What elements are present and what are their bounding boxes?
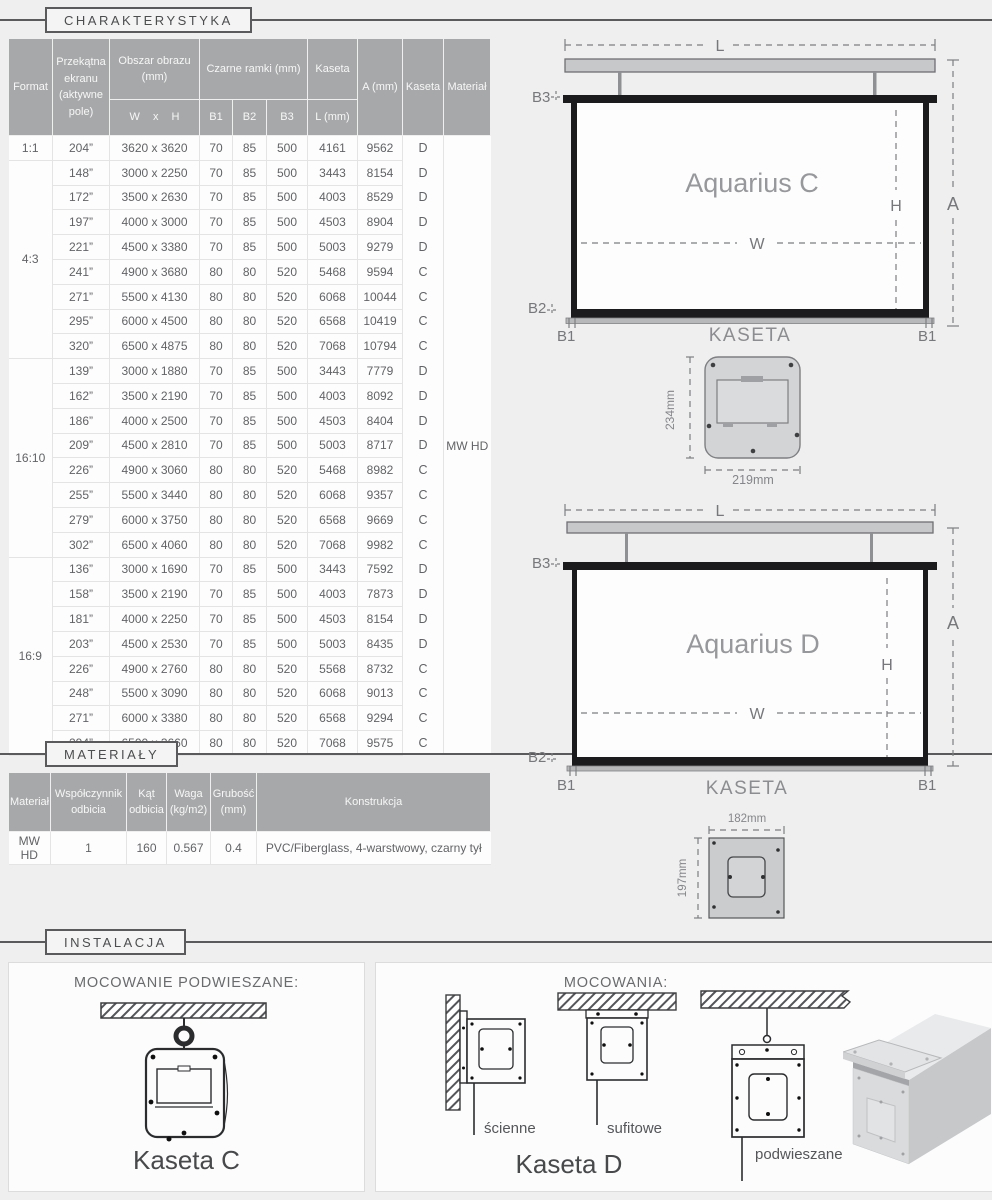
hanging-ring — [176, 1028, 192, 1044]
cell-fmt: 16:10 — [9, 359, 53, 557]
cell-b: 70 — [200, 185, 233, 210]
cell-kas: C — [403, 532, 444, 557]
spec-row: 1:1204”3620 x 3620708550041619562DMW HD — [9, 136, 491, 161]
col-thickness: Grubość (mm) — [211, 773, 257, 832]
spec-row: 181”4000 x 2250708550045038154D — [9, 607, 491, 632]
cell-b: 80 — [200, 483, 233, 508]
col-image-area: Obszar obrazu (mm) — [110, 39, 200, 100]
cell-diag: 203” — [53, 631, 110, 656]
cell-diag: 172” — [53, 185, 110, 210]
spec-sheet-page: CHARAKTERYSTYKA Format Przekątna ekranu … — [0, 0, 992, 1200]
cell-kas: D — [403, 408, 444, 433]
cell-b: 80 — [233, 681, 267, 706]
cell-diag: 139” — [53, 359, 110, 384]
cell-b: 520 — [267, 259, 308, 284]
cell-dims: 3000 x 1690 — [110, 557, 200, 582]
cell-b: 80 — [200, 507, 233, 532]
cell-b: 80 — [233, 334, 267, 359]
cell-a: 7779 — [358, 359, 403, 384]
cell-l: 3443 — [308, 557, 358, 582]
hanger-bracket — [625, 533, 628, 562]
cell-kas: C — [403, 334, 444, 359]
cell-a: 8435 — [358, 631, 403, 656]
col-l-mm: L (mm) — [308, 100, 358, 136]
col-b1: B1 — [200, 100, 233, 136]
aquarius-d-diagram: L Aquarius D W H A B3 B2 B1 B1 KASETA — [515, 498, 990, 810]
cell-diag: 271” — [53, 706, 110, 731]
cell-l: 5003 — [308, 433, 358, 458]
dim-label-w: W — [749, 706, 765, 723]
cell-b: 85 — [233, 185, 267, 210]
cell-kas: D — [403, 185, 444, 210]
dim-label-b3: B3 — [532, 555, 550, 572]
spec-row: 16:9136”3000 x 1690708550034437592D — [9, 557, 491, 582]
cell-a: 8154 — [358, 607, 403, 632]
cell-b: 80 — [200, 309, 233, 334]
cell-l: 5468 — [308, 458, 358, 483]
materials-row: MW HD11600.5670.4PVC/Fiberglass, 4-warst… — [9, 832, 491, 865]
cell-diag: 162” — [53, 383, 110, 408]
installation-panel-kaseta-c: MOCOWANIE PODWIESZANE: Kaseta C — [8, 962, 365, 1192]
spec-row: 221”4500 x 3380708550050039279D — [9, 235, 491, 260]
spec-row: 197”4000 x 3000708550045038904D — [9, 210, 491, 235]
cell-diag: 226” — [53, 458, 110, 483]
cell-dims: 6500 x 4060 — [110, 532, 200, 557]
cell-dims: 3500 x 2190 — [110, 582, 200, 607]
cell-diag: 204” — [53, 136, 110, 161]
cell-l: 6568 — [308, 309, 358, 334]
hanger-bracket — [618, 72, 622, 95]
col-b2: B2 — [233, 100, 267, 136]
cell-kas: D — [403, 160, 444, 185]
cell-l: 4503 — [308, 607, 358, 632]
cell-fmt: 4:3 — [9, 160, 53, 358]
cell-diag: 248” — [53, 681, 110, 706]
cell-b: 520 — [267, 706, 308, 731]
cell-b: 500 — [267, 582, 308, 607]
cell-b: 85 — [233, 383, 267, 408]
cell-dims: 3000 x 2250 — [110, 160, 200, 185]
spec-row: 248”5500 x 3090808052060689013C — [9, 681, 491, 706]
cell-b: 500 — [267, 235, 308, 260]
col-material: Materiał — [444, 39, 491, 136]
spec-row: 16:10139”3000 x 1880708550034437779D — [9, 359, 491, 384]
kaseta-d-cross-section: 182mm 197mm — [660, 812, 860, 934]
suspended-mount-drawing — [89, 999, 279, 1149]
cell-b: 500 — [267, 136, 308, 161]
cell-l: 4003 — [308, 185, 358, 210]
cell-b: 85 — [233, 557, 267, 582]
cell-b: 70 — [200, 359, 233, 384]
cell-fmt: 1:1 — [9, 136, 53, 161]
panel-caption: Kaseta C — [9, 1145, 364, 1176]
cell-b: 85 — [233, 210, 267, 235]
cell-b: 500 — [267, 408, 308, 433]
spec-row: 279”6000 x 3750808052065689669C — [9, 507, 491, 532]
top-bracket — [732, 1045, 804, 1059]
cell-kas: D — [403, 631, 444, 656]
cell-b: 520 — [267, 334, 308, 359]
cell-b: 70 — [200, 631, 233, 656]
cell-dims: 3000 x 1880 — [110, 359, 200, 384]
cell-a: 9562 — [358, 136, 403, 161]
cell-diag: 158” — [53, 582, 110, 607]
col-a: A (mm) — [358, 39, 403, 136]
cell-b: 85 — [233, 408, 267, 433]
cell-a: 9013 — [358, 681, 403, 706]
cell-b: 70 — [200, 557, 233, 582]
cell-l: 6068 — [308, 483, 358, 508]
dim-label-b1: B1 — [557, 328, 575, 345]
dim-label-l: L — [716, 503, 725, 520]
cell-a: 9669 — [358, 507, 403, 532]
dim-label-h: H — [881, 657, 893, 674]
cassette-3d-render — [843, 1002, 991, 1194]
cell-dims: 4500 x 3380 — [110, 235, 200, 260]
cell-a: 9575 — [358, 731, 403, 756]
cell-dims: 6000 x 4500 — [110, 309, 200, 334]
cell-kas: D — [403, 582, 444, 607]
cell-b: 80 — [200, 706, 233, 731]
cell-b: 520 — [267, 483, 308, 508]
cell-a: 9594 — [358, 259, 403, 284]
cell-b: 80 — [233, 284, 267, 309]
cell-b: 70 — [200, 607, 233, 632]
cell-value: 1 — [51, 832, 127, 865]
cell-b: 80 — [200, 458, 233, 483]
spec-row: 302”6500 x 4060808052070689982C — [9, 532, 491, 557]
dim-label-b1: B1 — [918, 328, 936, 345]
cell-b: 80 — [200, 259, 233, 284]
cell-dims: 6000 x 3750 — [110, 507, 200, 532]
cell-diag: 302” — [53, 532, 110, 557]
cell-mat: MW HD — [444, 136, 491, 756]
mount-label-wall: ścienne — [484, 1120, 536, 1137]
cell-a: 9294 — [358, 706, 403, 731]
cell-b: 85 — [233, 582, 267, 607]
col-kaseta-l: Kaseta — [308, 39, 358, 100]
screen-surface — [577, 570, 923, 757]
cell-b: 70 — [200, 210, 233, 235]
cell-dims: 3500 x 2630 — [110, 185, 200, 210]
cell-diag: 221” — [53, 235, 110, 260]
cell-l: 7068 — [308, 731, 358, 756]
aquarius-c-diagram: L Aquarius C W H A B3 B2 B1 B1 — [515, 30, 990, 352]
cell-kas: C — [403, 259, 444, 284]
cell-b: 80 — [233, 309, 267, 334]
cell-b: 520 — [267, 656, 308, 681]
dim-label-b1: B1 — [918, 777, 936, 794]
cell-a: 8154 — [358, 160, 403, 185]
cell-b: 80 — [233, 507, 267, 532]
spec-row: 209”4500 x 2810708550050038717D — [9, 433, 491, 458]
spec-row: 271”6000 x 3380808052065689294C — [9, 706, 491, 731]
cell-l: 4503 — [308, 210, 358, 235]
cell-b: 520 — [267, 458, 308, 483]
bottom-slat — [567, 766, 933, 771]
cell-diag: 255” — [53, 483, 110, 508]
col-angle: Kąt odbicia — [127, 773, 167, 832]
dim-label-b2: B2 — [528, 749, 546, 766]
cell-b: 80 — [233, 706, 267, 731]
col-reflection: Współczynnik odbicia — [51, 773, 127, 832]
cell-diag: 148” — [53, 160, 110, 185]
materials-table-body: MW HD11600.5670.4PVC/Fiberglass, 4-warst… — [9, 832, 491, 865]
cell-diag: 186” — [53, 408, 110, 433]
dim-label-b2: B2 — [528, 300, 546, 317]
cell-b: 500 — [267, 607, 308, 632]
materials-table: Materiał Współczynnik odbicia Kąt odbici… — [8, 772, 491, 865]
dim-label-b3: B3 — [532, 89, 550, 106]
cell-b: 80 — [200, 731, 233, 756]
cell-l: 4003 — [308, 582, 358, 607]
cell-a: 8404 — [358, 408, 403, 433]
mount-label-suspended: podwieszane — [755, 1146, 843, 1163]
cell-kas: C — [403, 656, 444, 681]
cell-kas: D — [403, 433, 444, 458]
cell-kas: C — [403, 731, 444, 756]
cell-l: 4503 — [308, 408, 358, 433]
cell-a: 10419 — [358, 309, 403, 334]
cell-a: 9982 — [358, 532, 403, 557]
dim-label-h: H — [890, 198, 902, 215]
cell-diag: 226” — [53, 656, 110, 681]
cell-diag: 136” — [53, 557, 110, 582]
cell-l: 7068 — [308, 532, 358, 557]
col-black-frames: Czarne ramki (mm) — [200, 39, 308, 100]
cell-value: 160 — [127, 832, 167, 865]
cell-l: 5003 — [308, 235, 358, 260]
cell-a: 9279 — [358, 235, 403, 260]
cell-value: 0.4 — [211, 832, 257, 865]
cell-b: 70 — [200, 433, 233, 458]
diagram-title: Aquarius D — [686, 629, 820, 659]
cassette-slot — [717, 380, 788, 423]
spec-row: 226”4900 x 2760808052055688732C — [9, 656, 491, 681]
col-kaseta-type: Kaseta — [403, 39, 444, 136]
ceiling-bracket — [586, 1010, 648, 1018]
cell-kas: D — [403, 359, 444, 384]
cell-dims: 6000 x 3380 — [110, 706, 200, 731]
cell-diag: 320” — [53, 334, 110, 359]
mount-label-ceiling: sufitowe — [607, 1120, 662, 1137]
cell-dims: 4000 x 3000 — [110, 210, 200, 235]
cell-diag: 271” — [53, 284, 110, 309]
bottom-slat — [566, 318, 934, 324]
cell-kas: D — [403, 557, 444, 582]
cell-l: 4003 — [308, 383, 358, 408]
cell-dims: 3620 x 3620 — [110, 136, 200, 161]
cell-diag: 197” — [53, 210, 110, 235]
cross-width-label: 182mm — [728, 813, 766, 825]
cell-dims: 4500 x 2530 — [110, 631, 200, 656]
cell-value: 0.567 — [167, 832, 211, 865]
cell-b: 80 — [200, 334, 233, 359]
cell-b: 70 — [200, 383, 233, 408]
col-material: Materiał — [9, 773, 51, 832]
cell-b: 520 — [267, 309, 308, 334]
cell-b: 85 — [233, 136, 267, 161]
cross-height-label: 197mm — [677, 859, 689, 897]
cell-a: 8732 — [358, 656, 403, 681]
col-weight: Waga (kg/m2) — [167, 773, 211, 832]
spec-row: 203”4500 x 2530708550050038435D — [9, 631, 491, 656]
hanger-bracket — [873, 72, 877, 95]
cell-kas: D — [403, 210, 444, 235]
col-construction: Konstrukcja — [257, 773, 491, 832]
cassette-bar — [567, 522, 933, 533]
cell-b: 80 — [233, 731, 267, 756]
cell-a: 7873 — [358, 582, 403, 607]
cell-a: 9357 — [358, 483, 403, 508]
cell-b: 500 — [267, 433, 308, 458]
cell-b: 70 — [200, 136, 233, 161]
section-title-charakterystyka: CHARAKTERYSTYKA — [45, 7, 252, 33]
cell-diag: 181” — [53, 607, 110, 632]
cell-b: 85 — [233, 359, 267, 384]
spec-row: 162”3500 x 2190708550040038092D — [9, 383, 491, 408]
cell-b: 500 — [267, 359, 308, 384]
screen-top-bar — [563, 95, 937, 103]
cell-b: 70 — [200, 408, 233, 433]
col-format: Format — [9, 39, 53, 136]
spec-table-header: Format Przekątna ekranu (aktywne pole) O… — [9, 39, 491, 136]
cell-dims: 4500 x 2810 — [110, 433, 200, 458]
cell-l: 6068 — [308, 681, 358, 706]
cell-b: 500 — [267, 210, 308, 235]
cell-b: 85 — [233, 433, 267, 458]
cassette — [732, 1059, 804, 1137]
cell-l: 6568 — [308, 706, 358, 731]
cross-width-label: 219mm — [732, 473, 774, 487]
col-diagonal: Przekątna ekranu (aktywne pole) — [53, 39, 110, 136]
spec-row: 320”6500 x 48758080520706810794C — [9, 334, 491, 359]
cell-b: 520 — [267, 284, 308, 309]
cell-dims: 5500 x 3090 — [110, 681, 200, 706]
cell-kas: C — [403, 706, 444, 731]
cell-diag: 209” — [53, 433, 110, 458]
cell-b: 70 — [200, 160, 233, 185]
section-title-materialy: MATERIAŁY — [45, 741, 178, 767]
cell-diag: 279” — [53, 507, 110, 532]
cell-b: 80 — [233, 259, 267, 284]
cell-dims: 3500 x 2190 — [110, 383, 200, 408]
cell-dims: 4000 x 2500 — [110, 408, 200, 433]
cell-diag: 295” — [53, 309, 110, 334]
wall — [446, 995, 460, 1110]
cassette-bar — [565, 59, 935, 72]
cell-b: 70 — [200, 582, 233, 607]
cell-b: 500 — [267, 557, 308, 582]
cell-kas: C — [403, 309, 444, 334]
cell-b: 520 — [267, 731, 308, 756]
cell-b: 500 — [267, 631, 308, 656]
dim-label-a: A — [947, 194, 959, 214]
cell-dims: 4000 x 2250 — [110, 607, 200, 632]
spec-table-body: 1:1204”3620 x 3620708550041619562DMW HD4… — [9, 136, 491, 756]
cell-b: 520 — [267, 507, 308, 532]
cross-height-label: 234mm — [663, 390, 677, 430]
dim-label-w: W — [749, 236, 765, 253]
cell-b: 500 — [267, 383, 308, 408]
cassette-slot — [728, 857, 765, 897]
panel-caption: Kaseta D — [469, 1149, 669, 1180]
spec-table: Format Przekątna ekranu (aktywne pole) O… — [8, 38, 491, 756]
cell-l: 3443 — [308, 160, 358, 185]
dim-label-b1: B1 — [557, 777, 575, 794]
diagram-title: Aquarius C — [685, 168, 819, 198]
ceiling — [101, 1003, 266, 1018]
cell-dims: 4900 x 2760 — [110, 656, 200, 681]
cell-b: 85 — [233, 160, 267, 185]
cell-b: 80 — [233, 656, 267, 681]
spec-row: 271”5500 x 41308080520606810044C — [9, 284, 491, 309]
cell-b: 80 — [200, 681, 233, 706]
screen-surface — [577, 103, 923, 309]
cell-b: 80 — [233, 483, 267, 508]
spec-row: 186”4000 x 2500708550045038404D — [9, 408, 491, 433]
cell-l: 6068 — [308, 284, 358, 309]
cell-b: 80 — [200, 656, 233, 681]
cell-l: 5003 — [308, 631, 358, 656]
cell-kas: C — [403, 681, 444, 706]
cell-dims: 4900 x 3680 — [110, 259, 200, 284]
cell-kas: D — [403, 383, 444, 408]
spec-row: 295”6000 x 45008080520656810419C — [9, 309, 491, 334]
cell-value: MW HD — [9, 832, 51, 865]
cell-a: 8982 — [358, 458, 403, 483]
hook — [764, 1036, 771, 1043]
screen-top-bar — [563, 562, 937, 570]
cell-a: 10044 — [358, 284, 403, 309]
cell-b: 85 — [233, 631, 267, 656]
kaseta-c-cross-section: 234mm 219mm — [645, 348, 875, 488]
cell-dims: 5500 x 3440 — [110, 483, 200, 508]
cell-a: 8529 — [358, 185, 403, 210]
hanger-bracket — [870, 533, 873, 562]
spec-row: 172”3500 x 2630708550040038529D — [9, 185, 491, 210]
cell-kas: C — [403, 507, 444, 532]
cell-kas: D — [403, 235, 444, 260]
dim-label-l: L — [716, 38, 725, 55]
cell-kas: C — [403, 284, 444, 309]
cell-dims: 4900 x 3060 — [110, 458, 200, 483]
dim-label-a: A — [947, 613, 959, 633]
cell-b: 80 — [233, 532, 267, 557]
wall-bracket — [460, 1011, 467, 1083]
cell-b: 80 — [200, 532, 233, 557]
cell-dims: 6500 x 4875 — [110, 334, 200, 359]
cell-kas: D — [403, 607, 444, 632]
cell-l: 5568 — [308, 656, 358, 681]
cell-a: 7592 — [358, 557, 403, 582]
ceiling — [558, 993, 676, 1010]
cell-kas: C — [403, 458, 444, 483]
col-b3: B3 — [267, 100, 308, 136]
cell-a: 8717 — [358, 433, 403, 458]
kaseta-caption: KASETA — [709, 325, 792, 346]
cell-l: 5468 — [308, 259, 358, 284]
cell-kas: D — [403, 136, 444, 161]
cell-value: PVC/Fiberglass, 4-warstwowy, czarny tył — [257, 832, 491, 865]
cell-b: 70 — [200, 235, 233, 260]
cell-l: 7068 — [308, 334, 358, 359]
cell-kas: C — [403, 483, 444, 508]
materials-table-header: Materiał Współczynnik odbicia Kąt odbici… — [9, 773, 491, 832]
cell-b: 80 — [233, 458, 267, 483]
cell-b: 520 — [267, 532, 308, 557]
cell-dims: 5500 x 4130 — [110, 284, 200, 309]
